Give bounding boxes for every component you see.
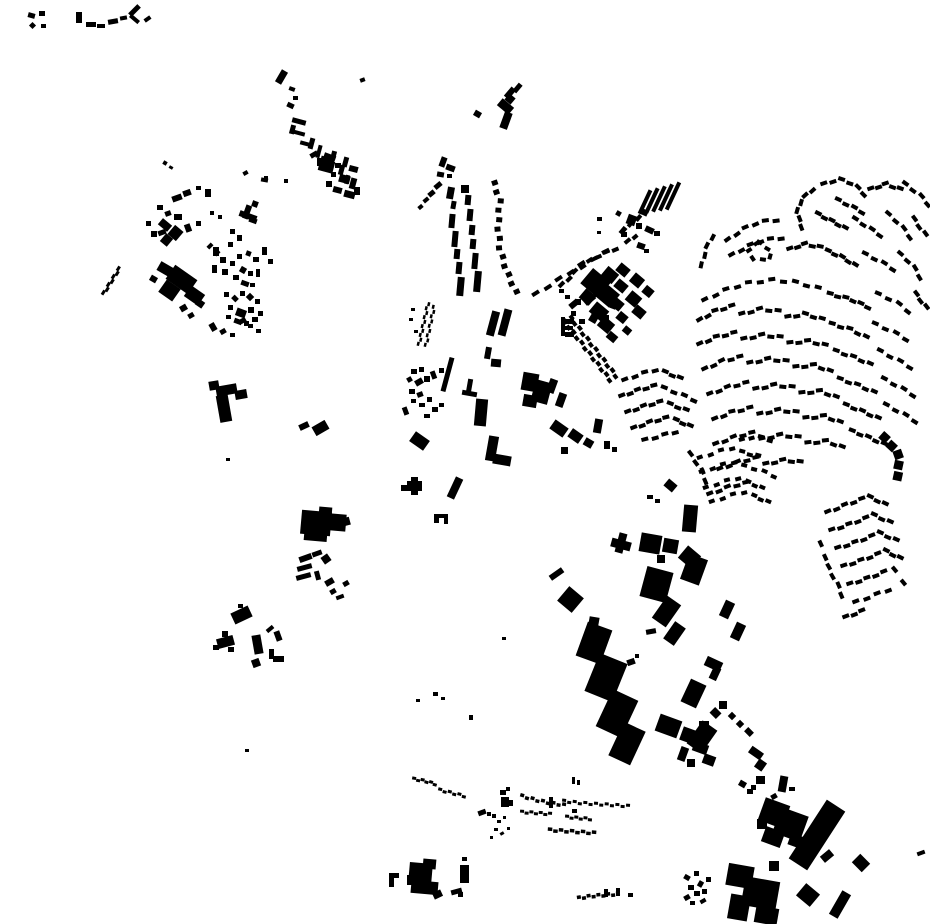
building-footprint bbox=[240, 280, 249, 287]
house-footprint bbox=[873, 498, 881, 505]
house-footprint bbox=[851, 215, 859, 222]
house-footprint bbox=[738, 310, 746, 316]
house-footprint bbox=[733, 231, 741, 238]
house-footprint bbox=[918, 192, 926, 200]
house-footprint bbox=[570, 829, 575, 833]
house-footprint bbox=[579, 817, 583, 820]
building-footprint bbox=[411, 369, 417, 374]
building-footprint bbox=[681, 679, 707, 709]
house-footprint bbox=[886, 353, 894, 360]
house-footprint bbox=[752, 386, 760, 391]
building-footprint bbox=[470, 239, 477, 249]
house-footprint bbox=[593, 346, 599, 352]
house-footprint bbox=[849, 561, 857, 567]
house-footprint bbox=[902, 336, 910, 343]
house-footprint bbox=[851, 539, 859, 545]
house-footprint bbox=[650, 382, 658, 388]
house-footprint bbox=[850, 406, 858, 412]
house-footprint bbox=[747, 309, 755, 315]
building-footprint bbox=[298, 421, 310, 431]
house-footprint bbox=[880, 568, 888, 574]
house-footprint bbox=[661, 431, 669, 437]
building-footprint bbox=[460, 865, 469, 883]
house-footprint bbox=[491, 179, 498, 186]
building-footprint bbox=[342, 157, 349, 168]
building-footprint bbox=[748, 746, 764, 761]
building-footprint bbox=[76, 12, 82, 23]
building-footprint bbox=[268, 259, 273, 264]
house-footprint bbox=[807, 390, 814, 395]
house-footprint bbox=[808, 244, 816, 249]
house-footprint bbox=[583, 801, 587, 804]
house-footprint bbox=[577, 325, 583, 331]
building-footprint bbox=[604, 441, 610, 449]
map-canvas bbox=[0, 0, 930, 924]
house-footprint bbox=[428, 329, 431, 333]
house-footprint bbox=[705, 338, 713, 344]
house-footprint bbox=[826, 367, 834, 373]
house-footprint bbox=[842, 201, 850, 208]
building-footprint bbox=[226, 458, 230, 461]
house-footprint bbox=[892, 218, 900, 226]
building-footprint bbox=[471, 253, 478, 269]
house-footprint bbox=[759, 484, 766, 490]
building-footprint bbox=[697, 880, 704, 888]
building-footprint bbox=[683, 874, 691, 881]
house-footprint bbox=[864, 304, 872, 310]
building-footprint bbox=[469, 225, 476, 235]
house-footprint bbox=[708, 498, 715, 504]
house-footprint bbox=[692, 459, 699, 467]
house-footprint bbox=[841, 501, 849, 507]
house-footprint bbox=[834, 544, 842, 550]
building-footprint bbox=[417, 204, 423, 210]
house-footprint bbox=[603, 371, 609, 377]
house-footprint bbox=[745, 247, 752, 254]
house-footprint bbox=[501, 263, 508, 270]
building-footprint bbox=[331, 172, 336, 177]
building-footprint bbox=[852, 854, 870, 872]
building-footprint bbox=[342, 580, 350, 587]
building-footprint bbox=[205, 189, 211, 197]
house-footprint bbox=[773, 358, 780, 363]
building-footprint bbox=[129, 14, 140, 24]
building-footprint bbox=[577, 780, 580, 785]
house-footprint bbox=[740, 336, 748, 341]
building-footprint bbox=[499, 111, 512, 130]
house-footprint bbox=[850, 500, 858, 506]
house-footprint bbox=[874, 550, 882, 556]
building-footprint bbox=[317, 158, 323, 166]
house-footprint bbox=[738, 436, 745, 441]
house-footprint bbox=[892, 536, 900, 542]
house-footprint bbox=[786, 245, 794, 251]
house-footprint bbox=[588, 342, 594, 348]
house-footprint bbox=[774, 308, 781, 313]
house-footprint bbox=[699, 261, 704, 269]
house-footprint bbox=[748, 435, 755, 440]
house-footprint bbox=[872, 438, 880, 444]
building-footprint bbox=[284, 179, 288, 183]
house-footprint bbox=[581, 830, 586, 834]
building-footprint bbox=[143, 15, 151, 22]
house-footprint bbox=[825, 563, 832, 571]
house-footprint bbox=[794, 434, 801, 439]
building-footprint bbox=[179, 304, 188, 313]
house-footprint bbox=[868, 532, 876, 538]
house-footprint bbox=[802, 415, 809, 420]
building-footprint bbox=[220, 257, 226, 263]
house-footprint bbox=[575, 831, 580, 835]
house-footprint bbox=[842, 294, 850, 300]
house-footprint bbox=[703, 242, 710, 250]
house-footprint bbox=[756, 305, 764, 311]
house-footprint bbox=[924, 201, 930, 209]
house-footprint bbox=[870, 256, 878, 263]
house-footprint bbox=[859, 221, 867, 228]
house-footprint bbox=[562, 798, 566, 801]
house-footprint bbox=[881, 500, 889, 507]
house-footprint bbox=[701, 365, 709, 372]
house-footprint bbox=[529, 810, 533, 813]
building-footprint bbox=[615, 210, 622, 217]
house-footprint bbox=[798, 223, 804, 231]
house-footprint bbox=[585, 335, 591, 341]
house-footprint bbox=[782, 358, 789, 363]
house-footprint bbox=[793, 314, 801, 319]
house-footprint bbox=[867, 185, 875, 191]
house-footprint bbox=[857, 358, 865, 364]
house-footprint bbox=[601, 356, 607, 362]
building-footprint bbox=[401, 485, 407, 491]
building-footprint bbox=[572, 809, 577, 813]
house-footprint bbox=[788, 459, 795, 464]
building-footprint bbox=[108, 18, 119, 25]
house-footprint bbox=[862, 333, 870, 340]
building-footprint bbox=[446, 186, 455, 199]
house-footprint bbox=[770, 474, 777, 480]
house-footprint bbox=[858, 607, 866, 613]
house-footprint bbox=[424, 780, 429, 784]
house-footprint bbox=[721, 438, 729, 444]
house-footprint bbox=[830, 442, 838, 448]
building-footprint bbox=[414, 377, 424, 386]
building-footprint bbox=[286, 102, 294, 109]
building-footprint bbox=[251, 200, 259, 208]
house-footprint bbox=[564, 830, 569, 834]
house-footprint bbox=[751, 467, 758, 472]
house-footprint bbox=[592, 830, 597, 834]
house-footprint bbox=[837, 324, 845, 330]
building-footprint bbox=[324, 577, 335, 587]
house-footprint bbox=[746, 405, 754, 410]
house-footprint bbox=[822, 438, 829, 443]
house-footprint bbox=[462, 795, 467, 799]
building-footprint bbox=[246, 293, 254, 301]
building-footprint bbox=[292, 117, 307, 125]
house-footprint bbox=[712, 333, 720, 338]
house-footprint bbox=[892, 407, 900, 414]
house-footprint bbox=[814, 284, 822, 290]
building-footprint bbox=[706, 877, 711, 882]
building-footprint bbox=[216, 394, 233, 423]
building-footprint bbox=[465, 195, 472, 205]
house-footprint bbox=[843, 543, 851, 549]
house-footprint bbox=[855, 579, 863, 585]
house-footprint bbox=[831, 252, 839, 258]
house-footprint bbox=[857, 300, 865, 306]
building-footprint bbox=[251, 658, 261, 668]
house-footprint bbox=[903, 257, 911, 265]
house-footprint bbox=[767, 236, 774, 241]
building-footprint bbox=[694, 871, 699, 876]
house-footprint bbox=[816, 244, 824, 249]
building-footprint bbox=[625, 290, 643, 308]
building-footprint bbox=[820, 849, 834, 863]
house-footprint bbox=[741, 224, 749, 230]
house-footprint bbox=[702, 252, 707, 260]
house-footprint bbox=[588, 803, 592, 806]
building-footprint bbox=[222, 269, 228, 275]
building-footprint bbox=[434, 514, 439, 523]
house-footprint bbox=[116, 266, 121, 272]
building-footprint bbox=[654, 231, 660, 236]
building-footprint bbox=[239, 266, 247, 274]
house-footprint bbox=[765, 498, 772, 504]
building-footprint bbox=[628, 893, 633, 897]
house-footprint bbox=[911, 215, 918, 223]
building-footprint bbox=[561, 447, 568, 454]
building-footprint bbox=[253, 257, 259, 262]
house-footprint bbox=[739, 449, 746, 454]
house-footprint bbox=[767, 334, 774, 339]
house-footprint bbox=[720, 306, 728, 312]
house-footprint bbox=[785, 434, 792, 439]
building-footprint bbox=[210, 211, 214, 215]
building-footprint bbox=[567, 428, 583, 444]
house-footprint bbox=[861, 386, 869, 392]
house-footprint bbox=[558, 281, 566, 289]
house-footprint bbox=[606, 892, 610, 896]
building-footprint bbox=[402, 406, 409, 415]
building-footprint bbox=[297, 563, 313, 572]
house-footprint bbox=[838, 253, 846, 260]
house-footprint bbox=[429, 780, 434, 784]
building-footprint bbox=[162, 160, 167, 165]
house-footprint bbox=[573, 800, 577, 803]
building-footprint bbox=[433, 692, 438, 696]
house-footprint bbox=[715, 388, 723, 394]
house-footprint bbox=[662, 414, 670, 420]
house-footprint bbox=[863, 596, 871, 602]
building-footprint bbox=[727, 893, 751, 921]
house-footprint bbox=[849, 298, 857, 304]
building-footprint bbox=[273, 656, 284, 662]
house-footprint bbox=[828, 417, 836, 423]
building-footprint bbox=[128, 4, 141, 17]
building-footprint bbox=[473, 110, 482, 119]
house-footprint bbox=[826, 290, 834, 296]
building-footprint bbox=[256, 269, 260, 277]
building-footprint bbox=[641, 285, 654, 298]
building-footprint bbox=[583, 437, 595, 448]
building-footprint bbox=[329, 588, 337, 595]
house-footprint bbox=[599, 804, 603, 807]
house-footprint bbox=[616, 891, 620, 895]
building-footprint bbox=[736, 720, 744, 728]
house-footprint bbox=[539, 811, 543, 814]
house-footprint bbox=[556, 803, 560, 807]
house-footprint bbox=[696, 340, 704, 346]
house-footprint bbox=[642, 386, 650, 392]
house-footprint bbox=[621, 376, 629, 382]
house-footprint bbox=[866, 493, 874, 500]
house-footprint bbox=[525, 811, 529, 814]
house-footprint bbox=[818, 315, 826, 321]
building-footprint bbox=[588, 616, 599, 626]
building-footprint bbox=[258, 311, 263, 316]
house-footprint bbox=[729, 433, 737, 439]
house-footprint bbox=[858, 209, 866, 216]
house-footprint bbox=[567, 801, 571, 804]
house-footprint bbox=[876, 232, 884, 239]
house-footprint bbox=[709, 466, 716, 472]
building-footprint bbox=[336, 594, 345, 600]
building-footprint bbox=[433, 181, 442, 190]
house-footprint bbox=[911, 418, 919, 425]
building-footprint bbox=[557, 586, 584, 613]
house-footprint bbox=[866, 412, 874, 418]
building-footprint bbox=[319, 506, 333, 515]
house-footprint bbox=[633, 386, 641, 392]
house-footprint bbox=[897, 357, 905, 364]
house-footprint bbox=[837, 525, 845, 531]
house-footprint bbox=[498, 198, 504, 203]
house-footprint bbox=[892, 329, 900, 336]
house-footprint bbox=[719, 496, 726, 502]
house-footprint bbox=[873, 590, 881, 596]
house-footprint bbox=[794, 244, 802, 250]
building-footprint bbox=[208, 322, 217, 332]
building-footprint bbox=[522, 394, 538, 408]
building-footprint bbox=[473, 271, 482, 293]
building-footprint bbox=[311, 549, 322, 557]
house-footprint bbox=[866, 555, 874, 561]
building-footprint bbox=[332, 186, 342, 194]
house-footprint bbox=[671, 430, 679, 436]
house-footprint bbox=[836, 375, 844, 381]
building-footprint bbox=[687, 720, 718, 753]
building-footprint bbox=[424, 414, 430, 418]
house-footprint bbox=[857, 557, 865, 563]
building-footprint bbox=[335, 163, 341, 168]
house-footprint bbox=[886, 518, 894, 524]
house-footprint bbox=[900, 224, 907, 232]
house-footprint bbox=[884, 534, 892, 540]
house-footprint bbox=[792, 278, 800, 284]
building-footprint bbox=[441, 357, 455, 392]
house-footprint bbox=[686, 422, 694, 428]
house-footprint bbox=[423, 320, 426, 324]
house-footprint bbox=[804, 440, 811, 445]
house-footprint bbox=[586, 831, 591, 835]
house-footprint bbox=[680, 392, 688, 398]
building-footprint bbox=[487, 812, 491, 816]
house-footprint bbox=[606, 377, 612, 383]
house-footprint bbox=[835, 581, 841, 589]
house-footprint bbox=[916, 273, 923, 281]
house-footprint bbox=[820, 413, 827, 418]
house-footprint bbox=[912, 264, 919, 272]
house-footprint bbox=[838, 591, 844, 599]
building-footprint bbox=[359, 77, 365, 82]
building-footprint bbox=[275, 69, 288, 85]
house-footprint bbox=[813, 440, 820, 445]
building-footprint bbox=[500, 831, 505, 836]
house-footprint bbox=[862, 514, 870, 520]
building-footprint bbox=[501, 797, 509, 807]
building-footprint bbox=[549, 419, 568, 437]
house-footprint bbox=[840, 562, 848, 568]
house-footprint bbox=[741, 463, 748, 468]
building-footprint bbox=[486, 310, 500, 336]
house-footprint bbox=[426, 338, 429, 342]
building-footprint bbox=[266, 625, 275, 633]
building-footprint bbox=[702, 889, 707, 894]
house-footprint bbox=[761, 468, 768, 474]
house-footprint bbox=[866, 360, 874, 366]
house-footprint bbox=[890, 381, 898, 388]
house-footprint bbox=[834, 294, 842, 300]
house-footprint bbox=[878, 516, 886, 522]
house-footprint bbox=[424, 343, 427, 347]
house-footprint bbox=[609, 367, 615, 373]
house-footprint bbox=[596, 893, 600, 897]
building-footprint bbox=[423, 858, 437, 869]
building-footprint bbox=[624, 237, 632, 245]
house-footprint bbox=[752, 221, 760, 227]
building-footprint bbox=[432, 407, 438, 412]
house-footprint bbox=[687, 450, 694, 458]
house-footprint bbox=[578, 802, 582, 805]
building-footprint bbox=[492, 814, 496, 818]
building-footprint bbox=[688, 885, 694, 890]
house-footprint bbox=[423, 315, 426, 319]
building-footprint bbox=[502, 637, 506, 640]
house-footprint bbox=[648, 402, 656, 408]
building-footprint bbox=[559, 289, 564, 293]
house-footprint bbox=[804, 338, 811, 343]
house-footprint bbox=[711, 307, 719, 313]
house-footprint bbox=[777, 236, 784, 241]
building-footprint bbox=[329, 513, 346, 531]
building-footprint bbox=[293, 96, 298, 100]
house-footprint bbox=[854, 381, 862, 387]
house-footprint bbox=[709, 233, 716, 241]
house-footprint bbox=[821, 341, 829, 346]
house-footprint bbox=[710, 362, 718, 369]
house-footprint bbox=[520, 793, 525, 797]
house-footprint bbox=[674, 405, 682, 411]
house-footprint bbox=[499, 253, 506, 260]
building-footprint bbox=[474, 399, 488, 427]
house-footprint bbox=[889, 184, 897, 190]
house-footprint bbox=[889, 552, 897, 559]
house-footprint bbox=[761, 385, 769, 390]
house-footprint bbox=[419, 333, 422, 337]
house-footprint bbox=[577, 895, 581, 899]
house-footprint bbox=[860, 537, 868, 543]
